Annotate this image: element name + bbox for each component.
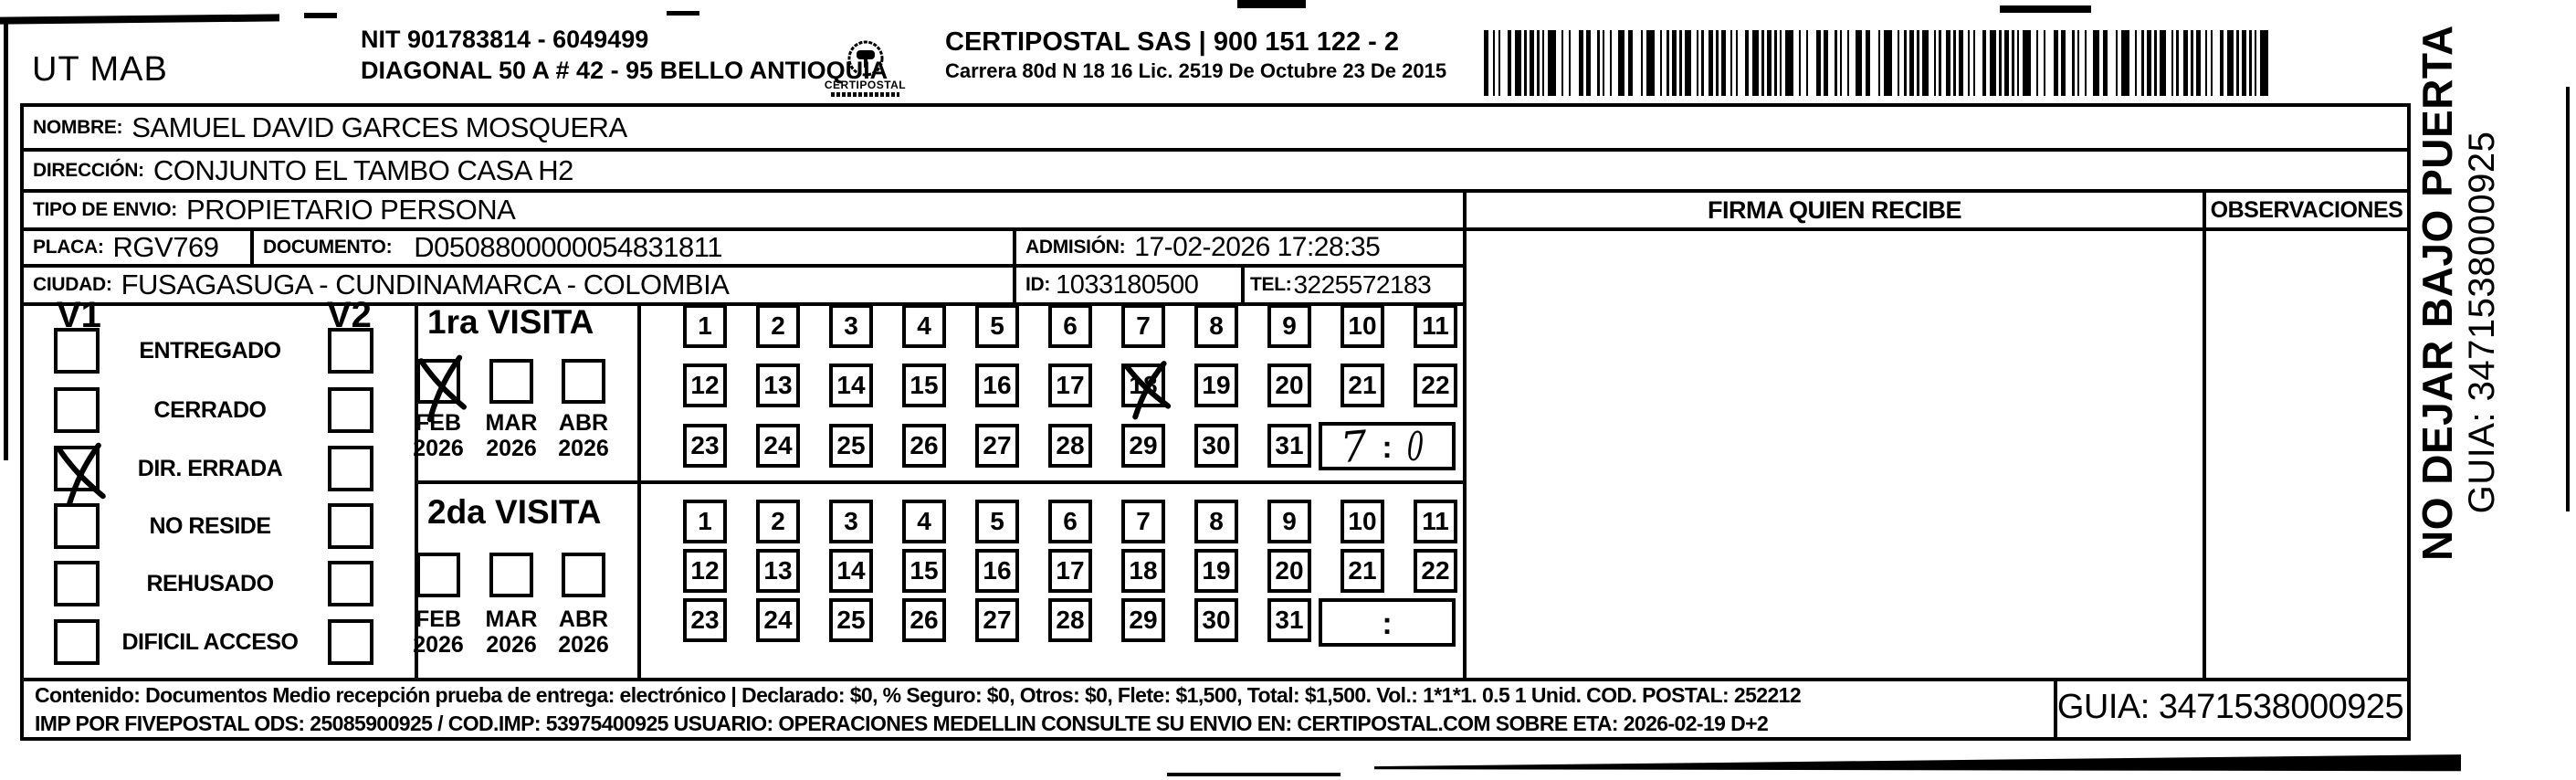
status-label: DIR. ERRADA — [100, 446, 320, 491]
day-cell-9[interactable]: 9 — [1267, 304, 1311, 348]
day-cell-2[interactable]: 2 — [756, 500, 800, 543]
status-panel: V1 V2 ENTREGADOCERRADODIR. ERRADANO RESI… — [24, 302, 415, 678]
status-checkbox-v1[interactable] — [54, 561, 100, 606]
side-note: NO DEJAR BAJO PUERTA GUIA: 3471538000925 — [2413, 84, 2503, 561]
month-checkbox-feb[interactable] — [416, 359, 460, 404]
status-checkbox-v2[interactable] — [328, 561, 373, 606]
firma-header: FIRMA QUIEN RECIBE — [1467, 193, 2203, 227]
day-cell-1[interactable]: 1 — [683, 500, 727, 543]
day-cell-25[interactable]: 25 — [829, 598, 873, 642]
status-row: NO RESIDE — [24, 503, 415, 549]
day-cell-7[interactable]: 7 — [1121, 500, 1165, 543]
direccion-value: CONJUNTO EL TAMBO CASA H2 — [153, 154, 573, 187]
month-year: 2026 — [473, 632, 550, 659]
day-cell-17[interactable]: 17 — [1048, 364, 1092, 407]
placa-cell: PLACA: RGV769 — [24, 231, 250, 264]
tel-cell: TEL: 3225572183 — [1245, 268, 1463, 302]
status-row: ENTREGADO — [24, 328, 415, 374]
day-cell-28[interactable]: 28 — [1048, 598, 1092, 642]
nit-line2: DIAGONAL 50 A # 42 - 95 BELLO ANTIOQUIA — [361, 57, 888, 85]
day-cell-10[interactable]: 10 — [1341, 304, 1384, 348]
day-cell-30[interactable]: 30 — [1194, 598, 1238, 642]
day-cell-7[interactable]: 7 — [1121, 304, 1165, 348]
observaciones-area[interactable] — [2206, 231, 2407, 678]
handwritten-time-minute: 0 — [1406, 423, 1425, 470]
day-cell-9[interactable]: 9 — [1267, 500, 1311, 543]
scan-artifact — [304, 13, 337, 18]
guia-cell: GUIA: 3471538000925 — [2054, 678, 2407, 737]
id-cell: ID: 1033180500 — [1016, 268, 1241, 302]
status-checkbox-v2[interactable] — [328, 328, 373, 374]
nombre-label: NOMBRE: — [33, 117, 122, 139]
month-checkbox-feb[interactable] — [416, 553, 460, 597]
day-cell-23[interactable]: 23 — [683, 424, 727, 468]
month-year: 2026 — [400, 436, 477, 462]
nombre-row: NOMBRE: SAMUEL DAVID GARCES MOSQUERA — [24, 107, 2403, 148]
day-cell-20[interactable]: 20 — [1267, 364, 1311, 407]
guia-number: GUIA: 3471538000925 — [2057, 688, 2403, 727]
status-checkbox-v2[interactable] — [328, 387, 373, 433]
company-address: Carrera 80d N 18 16 Lic. 2519 De Octubre… — [945, 59, 1446, 83]
status-row: CERRADO — [24, 387, 415, 433]
scan-artifact — [2000, 5, 2091, 13]
status-label: ENTREGADO — [100, 328, 320, 374]
month-year: 2026 — [400, 632, 477, 659]
day-cell-12[interactable]: 12 — [683, 549, 727, 593]
day-cell-11[interactable]: 11 — [1414, 500, 1457, 543]
placa-label: PLACA: — [33, 237, 104, 258]
ciudad-value: FUSAGASUGA - CUNDINAMARCA - COLOMBIA — [121, 269, 730, 301]
day-cell-26[interactable]: 26 — [902, 598, 946, 642]
direccion-label: DIRECCIÓN: — [33, 160, 144, 182]
no-dejar-text: NO DEJAR BAJO PUERTA — [2413, 84, 2462, 561]
status-checkbox-v2[interactable] — [328, 446, 373, 491]
visit-time-cell[interactable]: :70 — [1319, 422, 1456, 470]
day-cell-21[interactable]: 21 — [1341, 364, 1384, 407]
day-cell-5[interactable]: 5 — [975, 500, 1019, 543]
nit-line1: NIT 901783814 - 6049499 — [361, 26, 648, 54]
day-cell-23[interactable]: 23 — [683, 598, 727, 642]
month-label: FEB — [400, 410, 477, 437]
status-row: DIR. ERRADA — [24, 446, 415, 491]
day-cell-18[interactable]: 18 — [1121, 364, 1165, 407]
logo-tagline — [831, 92, 899, 97]
month-label: MAR — [473, 606, 550, 633]
status-checkbox-v2[interactable] — [328, 619, 373, 665]
documento-label: DOCUMENTO: — [263, 237, 392, 258]
day-cell-17[interactable]: 17 — [1048, 549, 1092, 593]
day-cell-24[interactable]: 24 — [756, 598, 800, 642]
certipostal-logo: CERTIPOSTAL — [822, 38, 909, 97]
scan-artifact — [4, 22, 8, 460]
day-cell-4[interactable]: 4 — [902, 500, 946, 543]
month-year: 2026 — [545, 436, 622, 462]
month-checkbox-abr[interactable] — [562, 553, 605, 597]
status-checkbox-v2[interactable] — [328, 503, 373, 549]
sender-name: UT MAB — [32, 50, 168, 90]
status-checkbox-v1[interactable] — [54, 619, 100, 665]
tipo-envio-row: TIPO DE ENVIO: PROPIETARIO PERSONA — [24, 193, 1463, 227]
day-cell-15[interactable]: 15 — [902, 549, 946, 593]
placa-value: RGV769 — [113, 231, 219, 264]
day-cell-30[interactable]: 30 — [1194, 424, 1238, 468]
day-cell-16[interactable]: 16 — [975, 549, 1019, 593]
day-cell-24[interactable]: 24 — [756, 424, 800, 468]
scan-artifact — [1374, 753, 2461, 776]
status-label: NO RESIDE — [100, 503, 320, 549]
scan-artifact — [1237, 0, 1306, 8]
handwritten-x-mark — [1120, 361, 1173, 417]
id-value: 1033180500 — [1056, 270, 1198, 300]
scan-artifact — [2566, 87, 2570, 511]
day-cell-10[interactable]: 10 — [1341, 500, 1384, 543]
month-label: MAR — [473, 410, 550, 437]
footer-line1: Contenido: Documentos Medio recepción pr… — [35, 683, 1801, 708]
status-row: DIFICIL ACCESO — [24, 619, 415, 665]
tel-label: TEL: — [1250, 274, 1291, 296]
status-checkbox-v1[interactable] — [54, 503, 100, 549]
status-options: ENTREGADOCERRADODIR. ERRADANO RESIDEREHU… — [24, 302, 415, 678]
admision-cell: ADMISIÓN: 17-02-2026 17:28:35 — [1016, 231, 1463, 264]
day-cell-18[interactable]: 18 — [1121, 549, 1165, 593]
status-label: DIFICIL ACCESO — [100, 619, 320, 665]
firma-signature-area[interactable] — [1467, 231, 2203, 678]
day-cell-6[interactable]: 6 — [1048, 500, 1092, 543]
documento-cell: DOCUMENTO: D0508800000054831811 — [254, 231, 1013, 264]
day-cell-29[interactable]: 29 — [1121, 424, 1165, 468]
observaciones-header: OBSERVACIONES — [2206, 193, 2407, 227]
status-checkbox-v1[interactable] — [54, 328, 100, 374]
certipostal-logo-icon — [846, 38, 886, 79]
day-cell-22[interactable]: 22 — [1414, 549, 1457, 593]
day-cell-12[interactable]: 12 — [683, 364, 727, 407]
month-label: FEB — [400, 606, 477, 633]
company-name: CERTIPOSTAL SAS | 900 151 122 - 2 — [945, 27, 1399, 58]
day-cell-6[interactable]: 6 — [1048, 304, 1092, 348]
day-cell-20[interactable]: 20 — [1267, 549, 1311, 593]
day-cell-27[interactable]: 27 — [975, 598, 1019, 642]
day-cell-22[interactable]: 22 — [1414, 364, 1457, 407]
ciudad-label: CIUDAD: — [33, 274, 112, 296]
month-checkbox-mar[interactable] — [489, 359, 533, 404]
nombre-value: SAMUEL DAVID GARCES MOSQUERA — [131, 111, 626, 144]
visit-title: 1ra VISITA — [427, 303, 594, 342]
status-label: CERRADO — [100, 387, 320, 433]
documento-value: D0508800000054831811 — [414, 231, 722, 264]
status-checkbox-v1[interactable] — [54, 387, 100, 433]
tipo-envio-value: PROPIETARIO PERSONA — [186, 194, 515, 227]
time-colon: : — [1322, 602, 1452, 643]
day-cell-28[interactable]: 28 — [1048, 424, 1092, 468]
handwritten-time-hour: 7 — [1339, 421, 1370, 472]
month-checkbox-abr[interactable] — [562, 359, 605, 404]
scan-artifact — [1167, 773, 1341, 776]
visit-title: 2da VISITA — [427, 493, 602, 532]
day-cell-1[interactable]: 1 — [683, 304, 727, 348]
visit-1-panel: 1ra VISITA FEB2026MAR2026ABR202612345678… — [415, 302, 1463, 480]
visit-2-panel: 2da VISITA FEB2026MAR2026ABR202612345678… — [415, 484, 1463, 678]
day-cell-14[interactable]: 14 — [829, 364, 873, 407]
day-cell-8[interactable]: 8 — [1194, 304, 1238, 348]
day-cell-19[interactable]: 19 — [1194, 549, 1238, 593]
day-cell-8[interactable]: 8 — [1194, 500, 1238, 543]
day-cell-2[interactable]: 2 — [756, 304, 800, 348]
day-cell-29[interactable]: 29 — [1121, 598, 1165, 642]
page: UT MAB NIT 901783814 - 6049499 DIAGONAL … — [0, 0, 2576, 780]
id-label: ID: — [1025, 274, 1050, 296]
day-cell-19[interactable]: 19 — [1194, 364, 1238, 407]
day-cell-3[interactable]: 3 — [829, 304, 873, 348]
day-cell-3[interactable]: 3 — [829, 500, 873, 543]
status-checkbox-v1[interactable] — [54, 446, 100, 491]
month-year: 2026 — [473, 436, 550, 462]
month-year: 2026 — [545, 632, 622, 659]
day-cell-13[interactable]: 13 — [756, 549, 800, 593]
month-label: ABR — [545, 606, 622, 633]
ciudad-cell: CIUDAD: FUSAGASUGA - CUNDINAMARCA - COLO… — [24, 268, 1013, 302]
scan-artifact — [0, 14, 279, 24]
day-cell-13[interactable]: 13 — [756, 364, 800, 407]
admision-label: ADMISIÓN: — [1025, 237, 1125, 258]
day-cell-14[interactable]: 14 — [829, 549, 873, 593]
day-cell-11[interactable]: 11 — [1414, 304, 1457, 348]
day-cell-31[interactable]: 31 — [1267, 424, 1311, 468]
month-label: ABR — [545, 410, 622, 437]
visit-time-cell[interactable]: : — [1319, 598, 1456, 647]
day-cell-21[interactable]: 21 — [1341, 549, 1384, 593]
day-cell-15[interactable]: 15 — [902, 364, 946, 407]
direccion-row: DIRECCIÓN: CONJUNTO EL TAMBO CASA H2 — [24, 152, 2403, 189]
day-cell-4[interactable]: 4 — [902, 304, 946, 348]
admision-value: 17-02-2026 17:28:35 — [1134, 232, 1380, 263]
footer-info: Contenido: Documentos Medio recepción pr… — [24, 678, 2054, 737]
status-row: REHUSADO — [24, 561, 415, 606]
side-guia-text: GUIA: 3471538000925 — [2462, 84, 2503, 561]
tipo-envio-label: TIPO DE ENVIO: — [33, 199, 177, 221]
waybill-form: NOMBRE: SAMUEL DAVID GARCES MOSQUERA DIR… — [20, 103, 2411, 741]
scan-artifact — [667, 11, 699, 16]
day-cell-5[interactable]: 5 — [975, 304, 1019, 348]
day-cell-26[interactable]: 26 — [902, 424, 946, 468]
footer-line2: IMP POR FIVEPOSTAL ODS: 25085900925 / CO… — [35, 711, 1768, 736]
day-cell-31[interactable]: 31 — [1267, 598, 1311, 642]
day-cell-25[interactable]: 25 — [829, 424, 873, 468]
day-cell-27[interactable]: 27 — [975, 424, 1019, 468]
month-checkbox-mar[interactable] — [489, 553, 533, 597]
day-cell-16[interactable]: 16 — [975, 364, 1019, 407]
status-label: REHUSADO — [100, 561, 320, 606]
barcode — [1484, 30, 2271, 96]
tel-value: 3225572183 — [1293, 270, 1431, 300]
logo-text: CERTIPOSTAL — [822, 79, 909, 91]
